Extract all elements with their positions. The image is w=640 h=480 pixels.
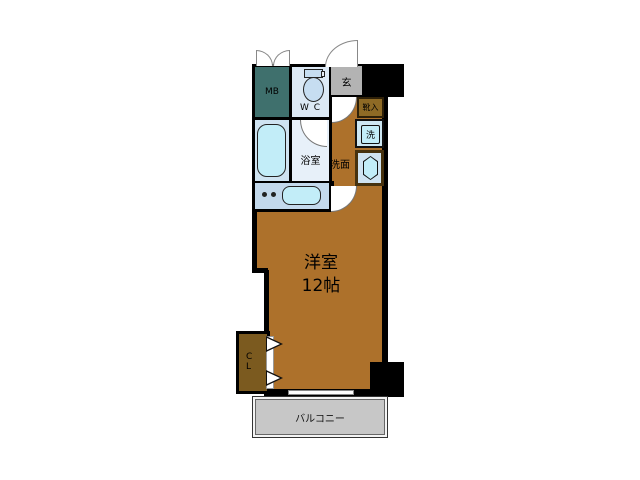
washing-machine-label: 洗 bbox=[366, 128, 375, 141]
washing-machine-box: 洗 bbox=[355, 119, 384, 148]
vanity-sink-box bbox=[355, 150, 384, 186]
stove-burner-icon bbox=[262, 192, 267, 197]
closet: C L bbox=[236, 331, 270, 394]
balcony: バルコニー bbox=[252, 396, 388, 438]
washing-machine-icon: 洗 bbox=[361, 125, 380, 144]
stove-burner-icon bbox=[271, 192, 276, 197]
shoe-cabinet-label: 靴入 bbox=[363, 102, 379, 113]
bathtub-icon bbox=[257, 124, 286, 177]
closet-bifold-icon bbox=[266, 370, 283, 386]
kitchen-sink-icon bbox=[282, 186, 321, 205]
toilet-label: W C bbox=[292, 103, 329, 113]
structural-column-bottom bbox=[370, 362, 404, 397]
meter-box-label: MB bbox=[255, 87, 289, 97]
meter-box-door-left-icon bbox=[256, 50, 273, 66]
entrance-door-arc-icon bbox=[325, 40, 358, 67]
structural-column-top bbox=[360, 64, 404, 97]
floor-plan: MB W C 玄 浴室 靴入 洗 洗面 洋室 12帖 C bbox=[0, 0, 640, 480]
toilet-flush-icon bbox=[321, 71, 325, 77]
closet-bifold-icon bbox=[266, 336, 283, 352]
bathroom-label: 浴室 bbox=[292, 152, 329, 167]
shoe-cabinet: 靴入 bbox=[357, 97, 384, 118]
main-room-size: 12帖 bbox=[262, 275, 380, 298]
wall-left-upper bbox=[252, 209, 257, 273]
washroom-label: 洗面 bbox=[330, 156, 350, 171]
balcony-label: バルコニー bbox=[295, 410, 345, 425]
entrance-room: 玄 bbox=[329, 64, 364, 97]
balcony-window bbox=[288, 390, 354, 395]
closet-label-l: L bbox=[246, 362, 267, 372]
main-room-label: 洋室 12帖 bbox=[262, 252, 380, 298]
meter-box-room: MB bbox=[252, 64, 292, 120]
meter-box-door-right-icon bbox=[273, 50, 290, 66]
entrance-label: 玄 bbox=[331, 74, 362, 89]
main-room-name: 洋室 bbox=[262, 252, 380, 275]
balcony-inner: バルコニー bbox=[255, 399, 385, 435]
toilet-bowl-icon bbox=[303, 77, 324, 102]
closet-label-c: C bbox=[246, 352, 267, 362]
